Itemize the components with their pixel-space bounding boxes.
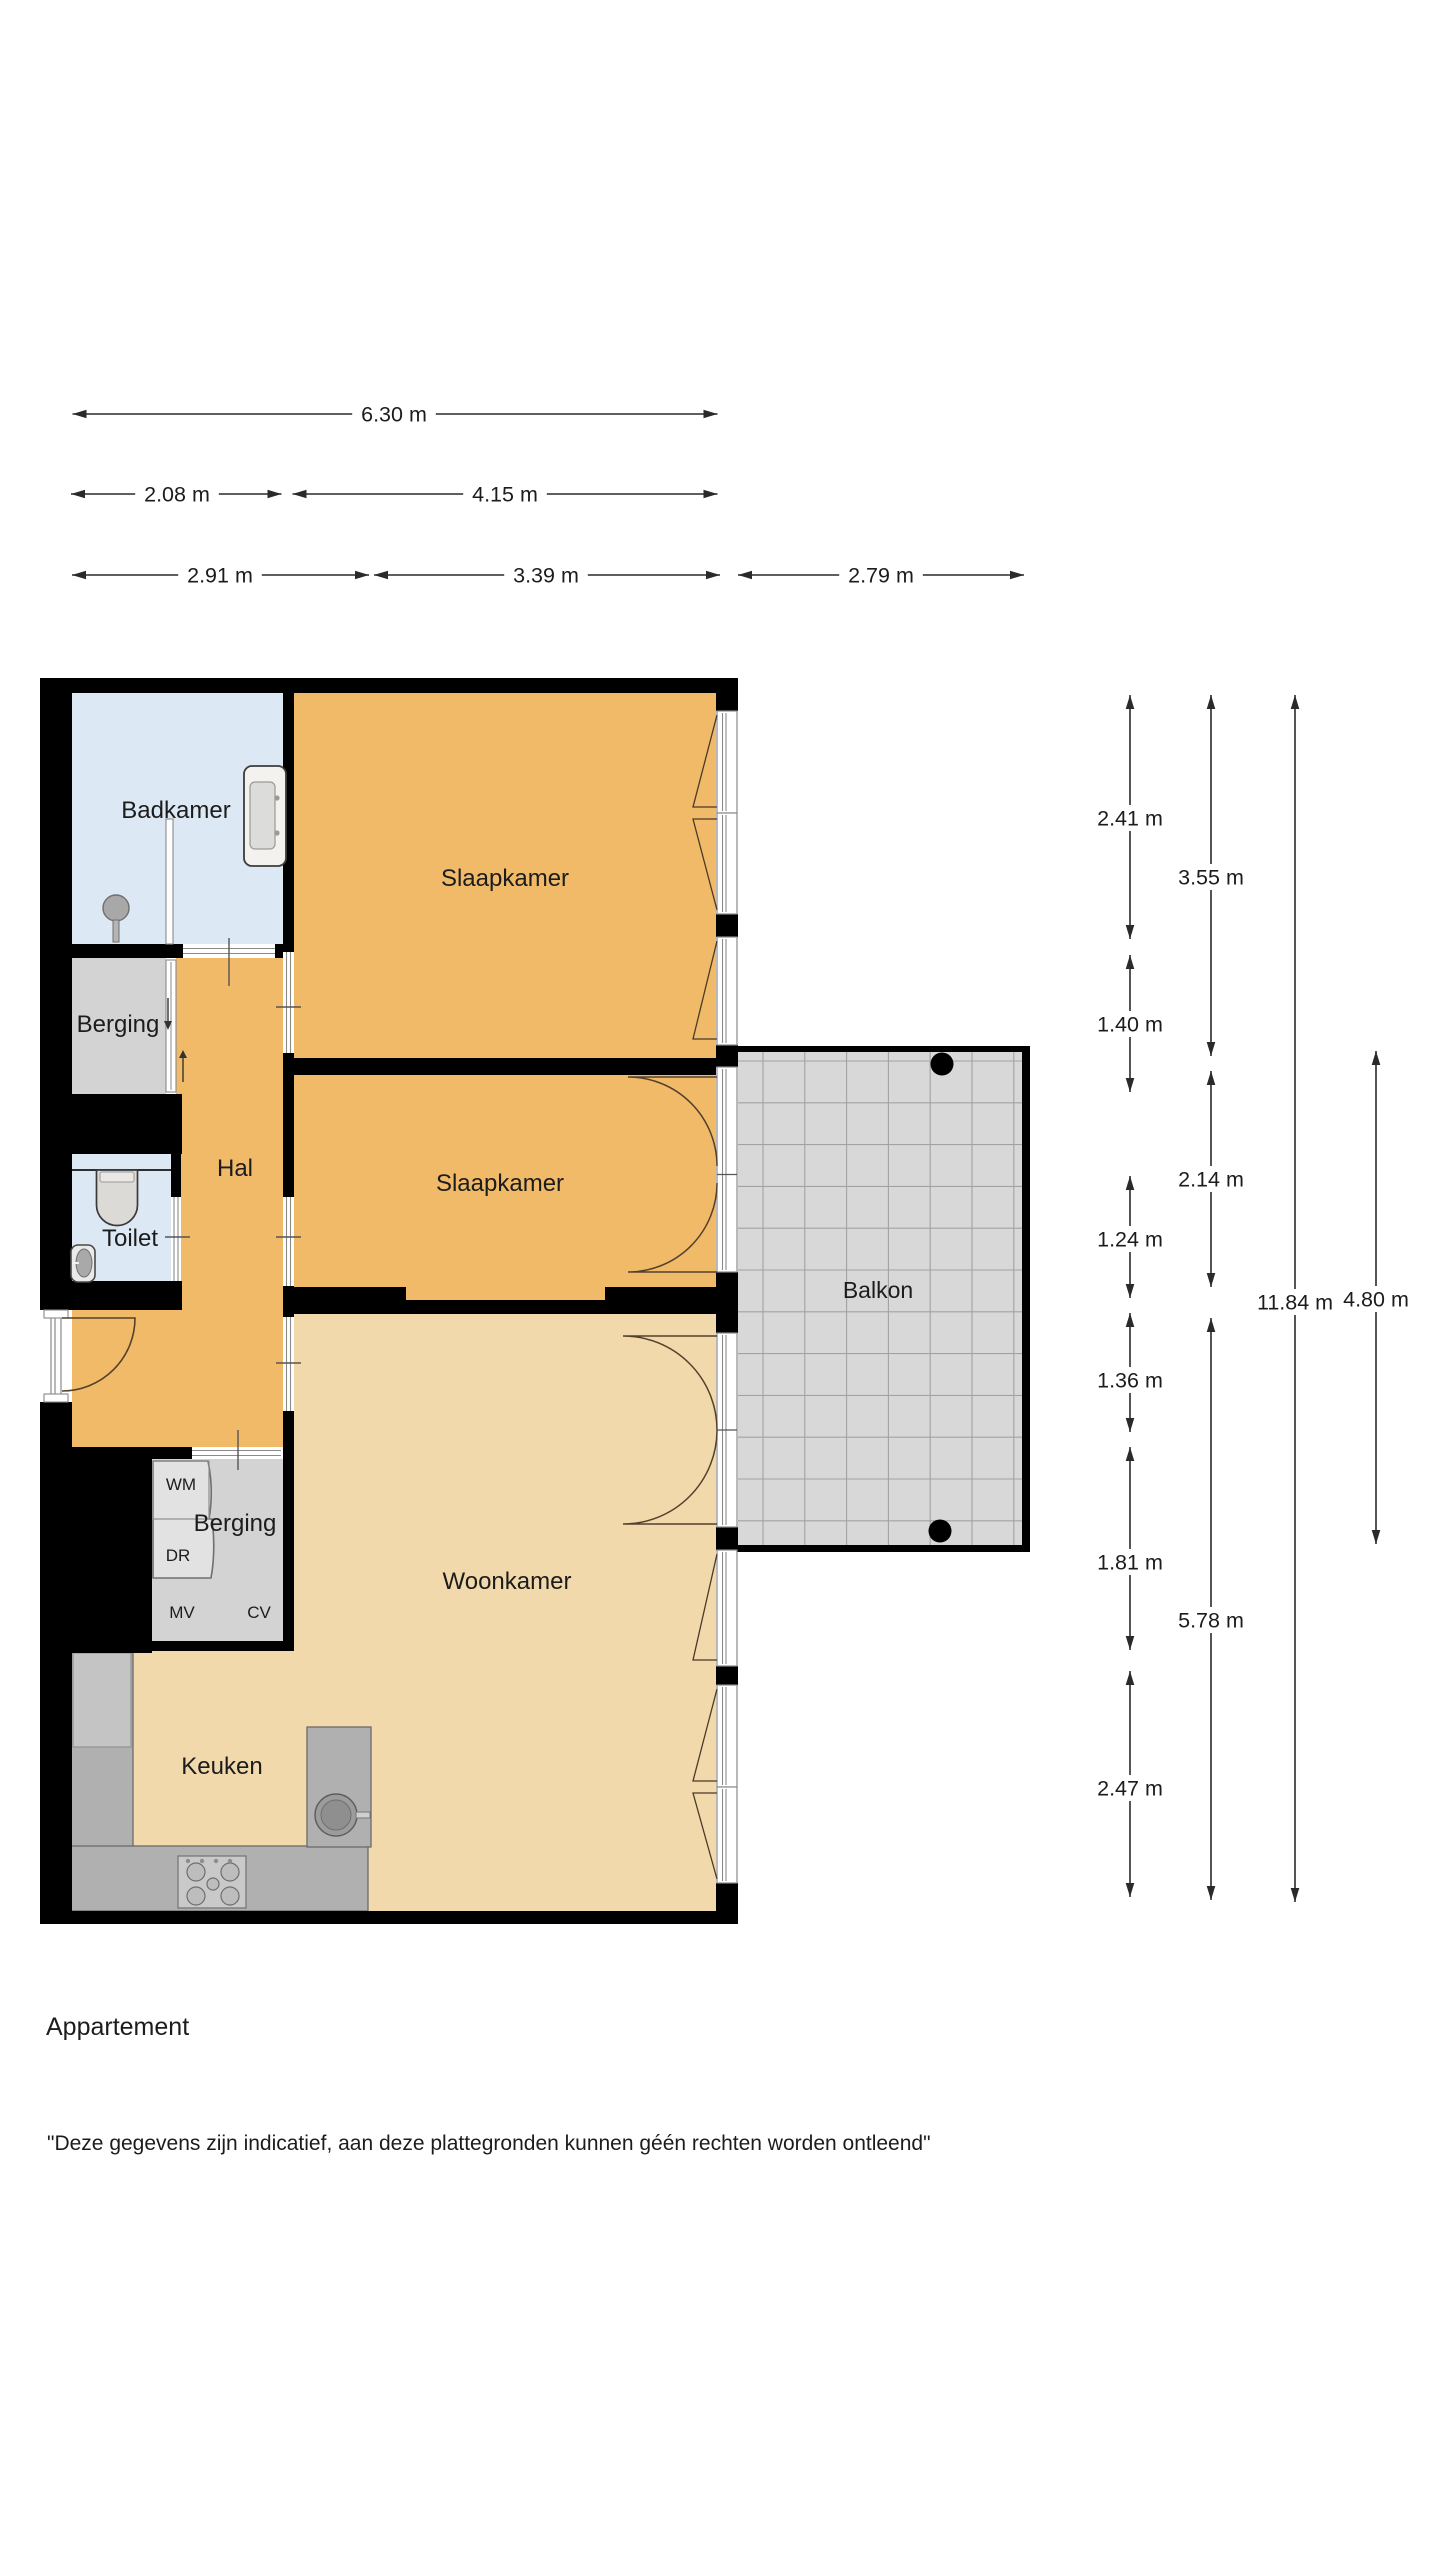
svg-text:2.41 m: 2.41 m [1097, 807, 1163, 831]
svg-text:5.78 m: 5.78 m [1178, 1609, 1244, 1633]
svg-text:Badkamer: Badkamer [121, 797, 230, 824]
svg-text:2.91 m: 2.91 m [187, 564, 253, 588]
svg-text:2.08 m: 2.08 m [144, 483, 210, 507]
svg-text:1.40 m: 1.40 m [1097, 1013, 1163, 1037]
svg-text:4.15 m: 4.15 m [472, 483, 538, 507]
svg-text:Balkon: Balkon [843, 1277, 913, 1303]
svg-text:6.30 m: 6.30 m [361, 403, 427, 427]
svg-text:Slaapkamer: Slaapkamer [436, 1170, 564, 1197]
svg-text:3.39 m: 3.39 m [513, 564, 579, 588]
svg-text:Hal: Hal [217, 1155, 253, 1182]
svg-text:4.80 m: 4.80 m [1343, 1288, 1409, 1312]
svg-text:Berging: Berging [77, 1011, 160, 1038]
svg-text:MV: MV [169, 1603, 195, 1622]
svg-text:1.81 m: 1.81 m [1097, 1551, 1163, 1575]
svg-text:2.47 m: 2.47 m [1097, 1777, 1163, 1801]
svg-text:1.24 m: 1.24 m [1097, 1228, 1163, 1252]
svg-text:11.84 m: 11.84 m [1257, 1291, 1333, 1315]
svg-text:Berging: Berging [194, 1510, 277, 1537]
svg-text:1.36 m: 1.36 m [1097, 1369, 1163, 1393]
svg-text:Slaapkamer: Slaapkamer [441, 865, 569, 892]
svg-text:DR: DR [166, 1546, 191, 1565]
svg-text:2.14 m: 2.14 m [1178, 1168, 1244, 1192]
svg-text:Keuken: Keuken [181, 1753, 262, 1780]
svg-text:WM: WM [166, 1475, 196, 1494]
svg-text:Toilet: Toilet [102, 1225, 158, 1252]
svg-text:3.55 m: 3.55 m [1178, 866, 1244, 890]
svg-text:"Deze gegevens zijn indicatief: "Deze gegevens zijn indicatief, aan deze… [47, 2132, 931, 2155]
svg-text:2.79 m: 2.79 m [848, 564, 914, 588]
svg-text:Woonkamer: Woonkamer [443, 1568, 572, 1595]
svg-text:Appartement: Appartement [46, 2013, 189, 2041]
svg-text:CV: CV [247, 1603, 271, 1622]
